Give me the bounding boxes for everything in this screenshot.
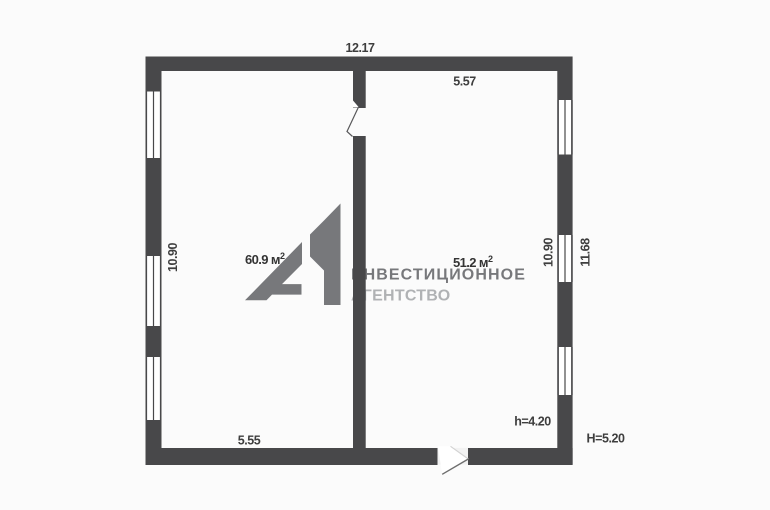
svg-text:АГЕНТСТВО: АГЕНТСТВО (351, 288, 450, 305)
svg-text:60.9 м2: 60.9 м2 (245, 251, 285, 267)
svg-text:10.90: 10.90 (166, 242, 180, 272)
svg-text:5.57: 5.57 (453, 75, 476, 89)
svg-text:10.90: 10.90 (542, 237, 556, 267)
svg-text:5.55: 5.55 (238, 434, 261, 448)
svg-text:H=5.20: H=5.20 (587, 432, 625, 446)
svg-text:12.17: 12.17 (345, 41, 375, 55)
svg-text:ИНВЕСТИЦИОННОЕ: ИНВЕСТИЦИОННОЕ (351, 267, 526, 284)
svg-text:51.2 м2: 51.2 м2 (453, 254, 493, 270)
svg-text:h=4.20: h=4.20 (514, 415, 551, 429)
svg-text:11.68: 11.68 (579, 238, 593, 267)
